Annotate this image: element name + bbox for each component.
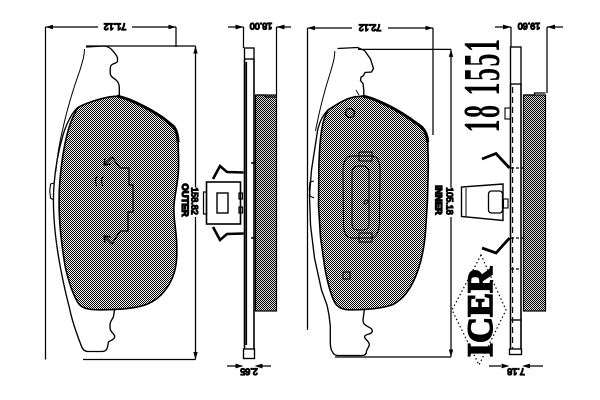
svg-text:72.12: 72.12	[359, 22, 382, 32]
svg-text:71.12: 71.12	[104, 21, 127, 31]
svg-text:18.00: 18.00	[250, 21, 273, 31]
svg-text:OUTER: OUTER	[179, 183, 190, 216]
svg-text:INNER: INNER	[433, 185, 444, 215]
svg-text:2.65: 2.65	[240, 367, 258, 377]
svg-text:105.18: 105.18	[445, 187, 455, 215]
svg-text:19.60: 19.60	[518, 21, 541, 31]
svg-text:18 1551: 18 1551	[452, 38, 510, 133]
svg-text:7.18: 7.18	[507, 367, 525, 377]
svg-text:158.82: 158.82	[190, 187, 200, 215]
svg-text:ICER: ICER	[460, 266, 500, 357]
